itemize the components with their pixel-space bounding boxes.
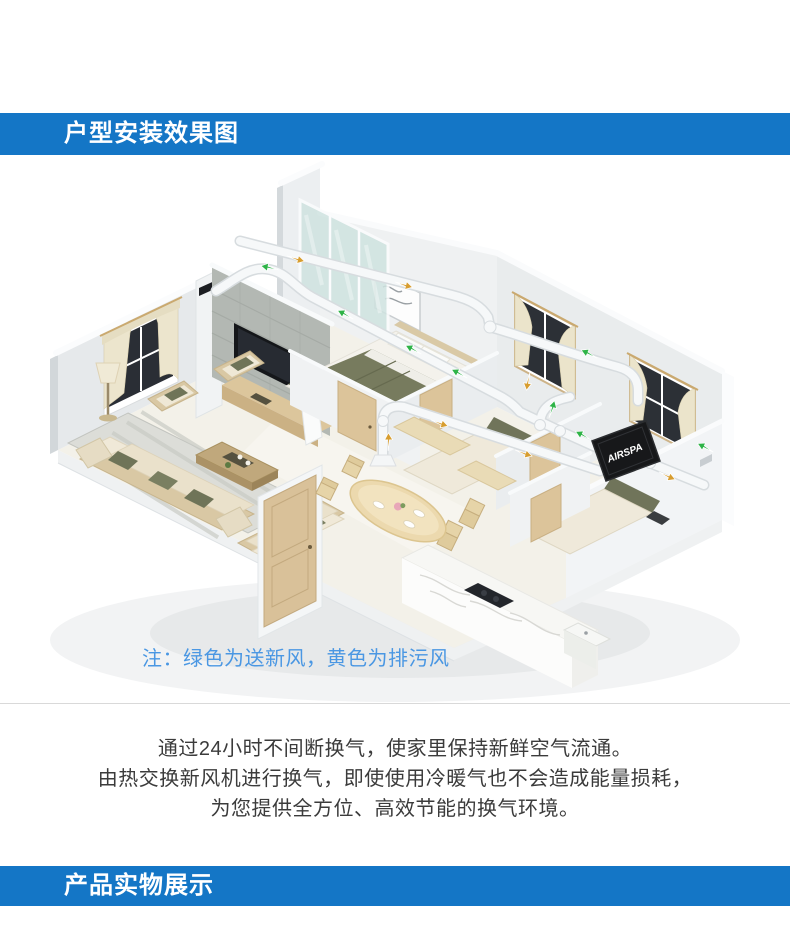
- section-title: 户型安装效果图: [0, 120, 239, 147]
- ceiling-diffuser: [370, 455, 396, 466]
- description-text: 通过24小时不间断换气，使家里保持新鲜空气流通。 由热交换新风机进行换气，即使使…: [0, 734, 790, 824]
- page: { "sections": { "install_diagram": { "ti…: [0, 0, 790, 928]
- description-line: 由热交换新风机进行换气，即使使用冷暖气也不会造成能量损耗，: [0, 764, 790, 794]
- description-line: 通过24小时不间断换气，使家里保持新鲜空气流通。: [0, 734, 790, 764]
- section-title: 产品实物展示: [0, 872, 214, 899]
- section-header-product-display: 产品实物展示: [0, 866, 790, 906]
- diagram-note: 注：绿色为送新风，黄色为排污风: [142, 642, 450, 671]
- divider-line: [0, 703, 790, 704]
- floor-plan-illustration: AIRSPA: [0, 155, 790, 710]
- description-line: 为您提供全方位、高效节能的换气环境。: [0, 794, 790, 824]
- section-header-install-diagram: 户型安装效果图: [0, 113, 790, 155]
